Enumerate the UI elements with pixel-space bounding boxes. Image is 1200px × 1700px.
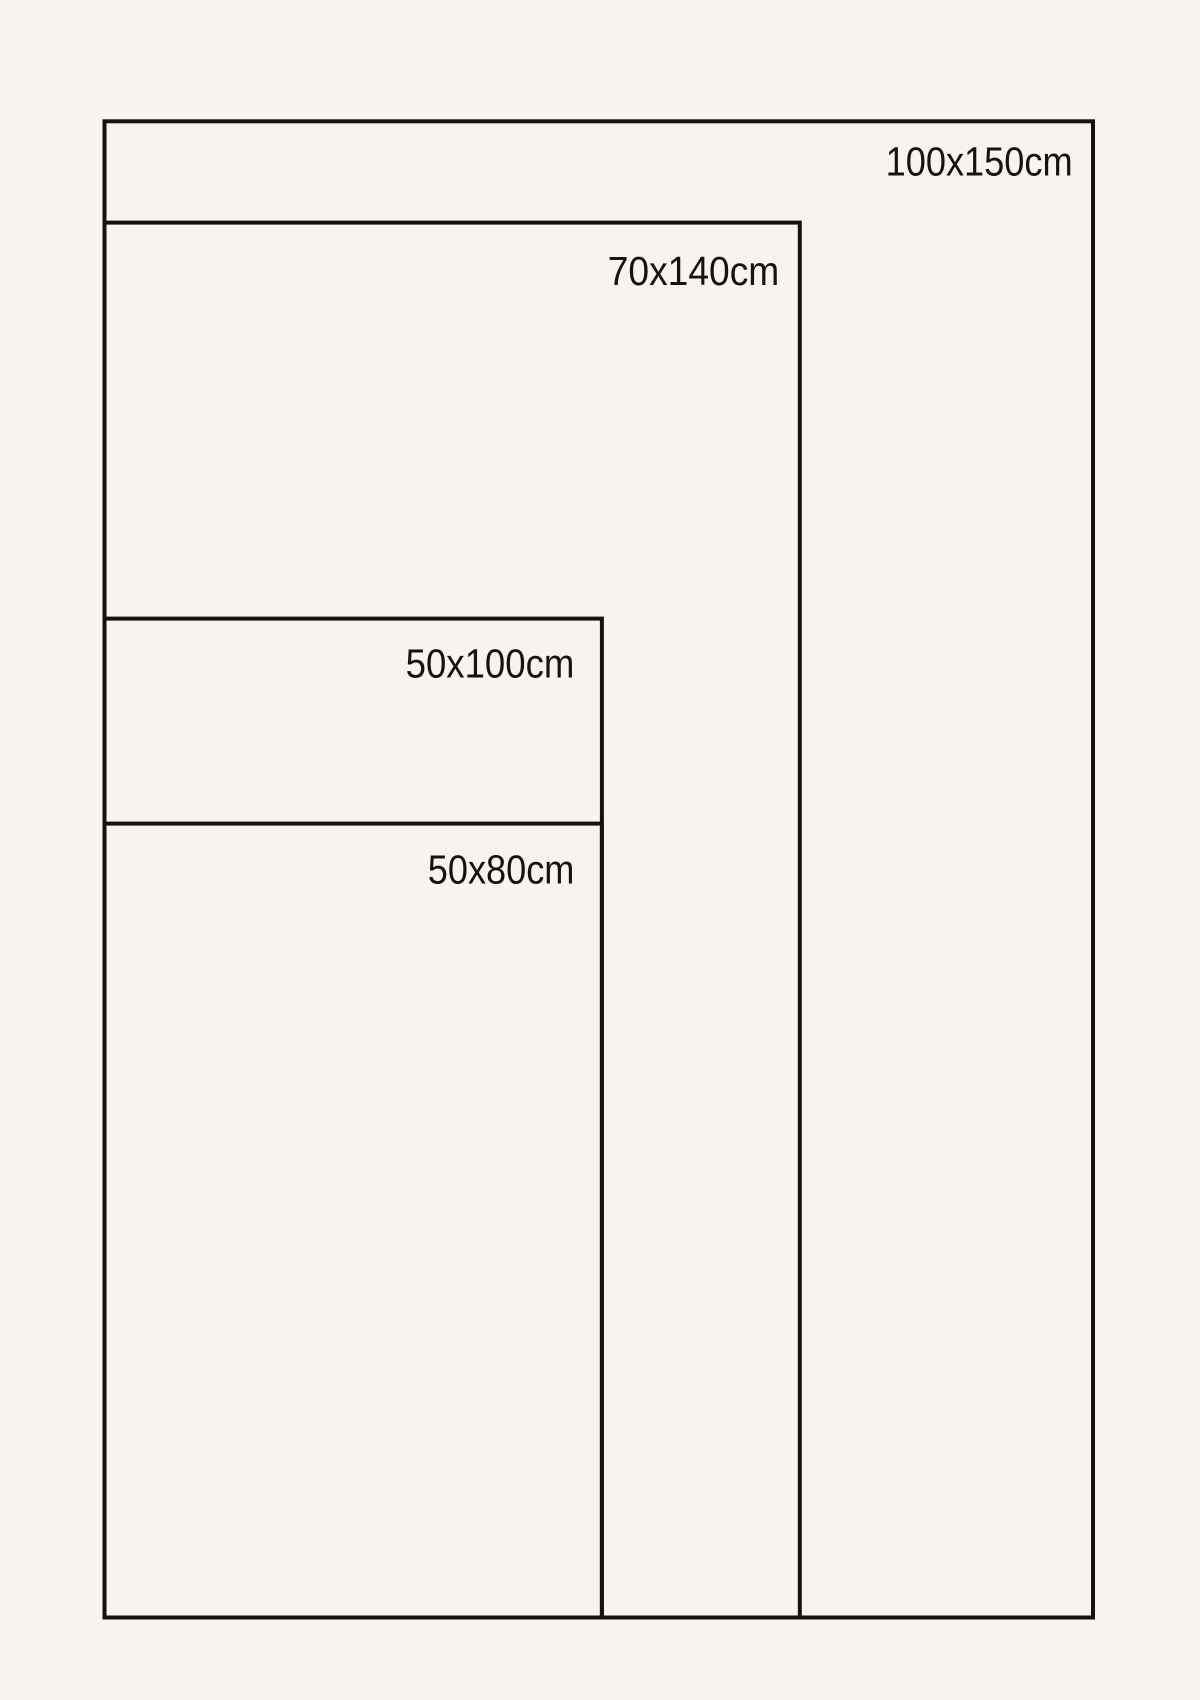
svg-text:70x140cm: 70x140cm [608, 248, 780, 294]
svg-text:100x150cm: 100x150cm [886, 139, 1073, 185]
svg-text:50x100cm: 50x100cm [406, 641, 575, 687]
svg-text:50x80cm: 50x80cm [428, 847, 575, 893]
